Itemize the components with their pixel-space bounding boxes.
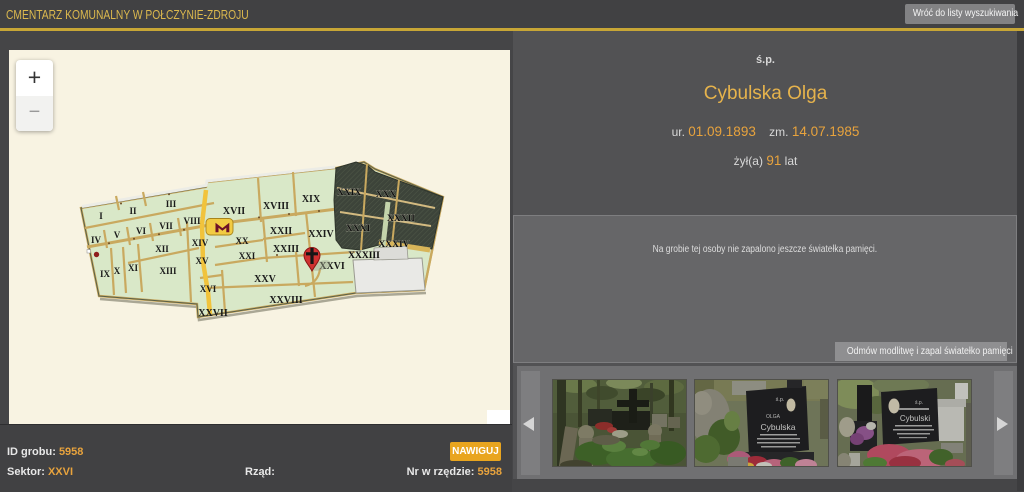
svg-text:VI: VI	[136, 226, 146, 236]
svg-text:XXVIII: XXVIII	[269, 295, 302, 306]
svg-text:VIII: VIII	[183, 216, 201, 226]
svg-text:XXV: XXV	[254, 274, 276, 285]
svg-text:IX: IX	[100, 269, 111, 279]
svg-text:XIX: XIX	[302, 194, 321, 205]
svg-text:XX: XX	[236, 236, 249, 246]
svg-text:XXIII: XXIII	[273, 244, 299, 255]
svg-text:XXXI: XXXI	[346, 224, 371, 234]
svg-text:XVII: XVII	[223, 206, 245, 217]
svg-text:XXII: XXII	[270, 226, 292, 237]
svg-text:XXXIII: XXXIII	[348, 251, 380, 261]
svg-text:XI: XI	[128, 263, 138, 273]
svg-text:V: V	[114, 230, 121, 240]
svg-text:XXIX: XXIX	[337, 188, 361, 198]
svg-text:II: II	[129, 206, 137, 216]
svg-text:XXIV: XXIV	[308, 229, 334, 240]
svg-text:XIV: XIV	[192, 238, 209, 248]
svg-text:III: III	[166, 199, 177, 209]
svg-text:I: I	[99, 211, 103, 221]
svg-text:XII: XII	[155, 244, 169, 254]
svg-text:VII: VII	[159, 221, 173, 231]
svg-text:XXX: XXX	[376, 190, 397, 200]
svg-text:XVIII: XVIII	[263, 201, 289, 212]
svg-text:XIII: XIII	[159, 266, 177, 276]
svg-text:IV: IV	[91, 235, 102, 245]
svg-text:X: X	[114, 266, 121, 276]
svg-text:XXVII: XXVII	[198, 308, 228, 319]
svg-text:XVI: XVI	[200, 284, 217, 294]
svg-text:XV: XV	[196, 256, 209, 266]
svg-text:XXXII: XXXII	[387, 214, 415, 224]
svg-text:XXI: XXI	[239, 251, 256, 261]
svg-text:XXXIV: XXXIV	[378, 240, 409, 250]
